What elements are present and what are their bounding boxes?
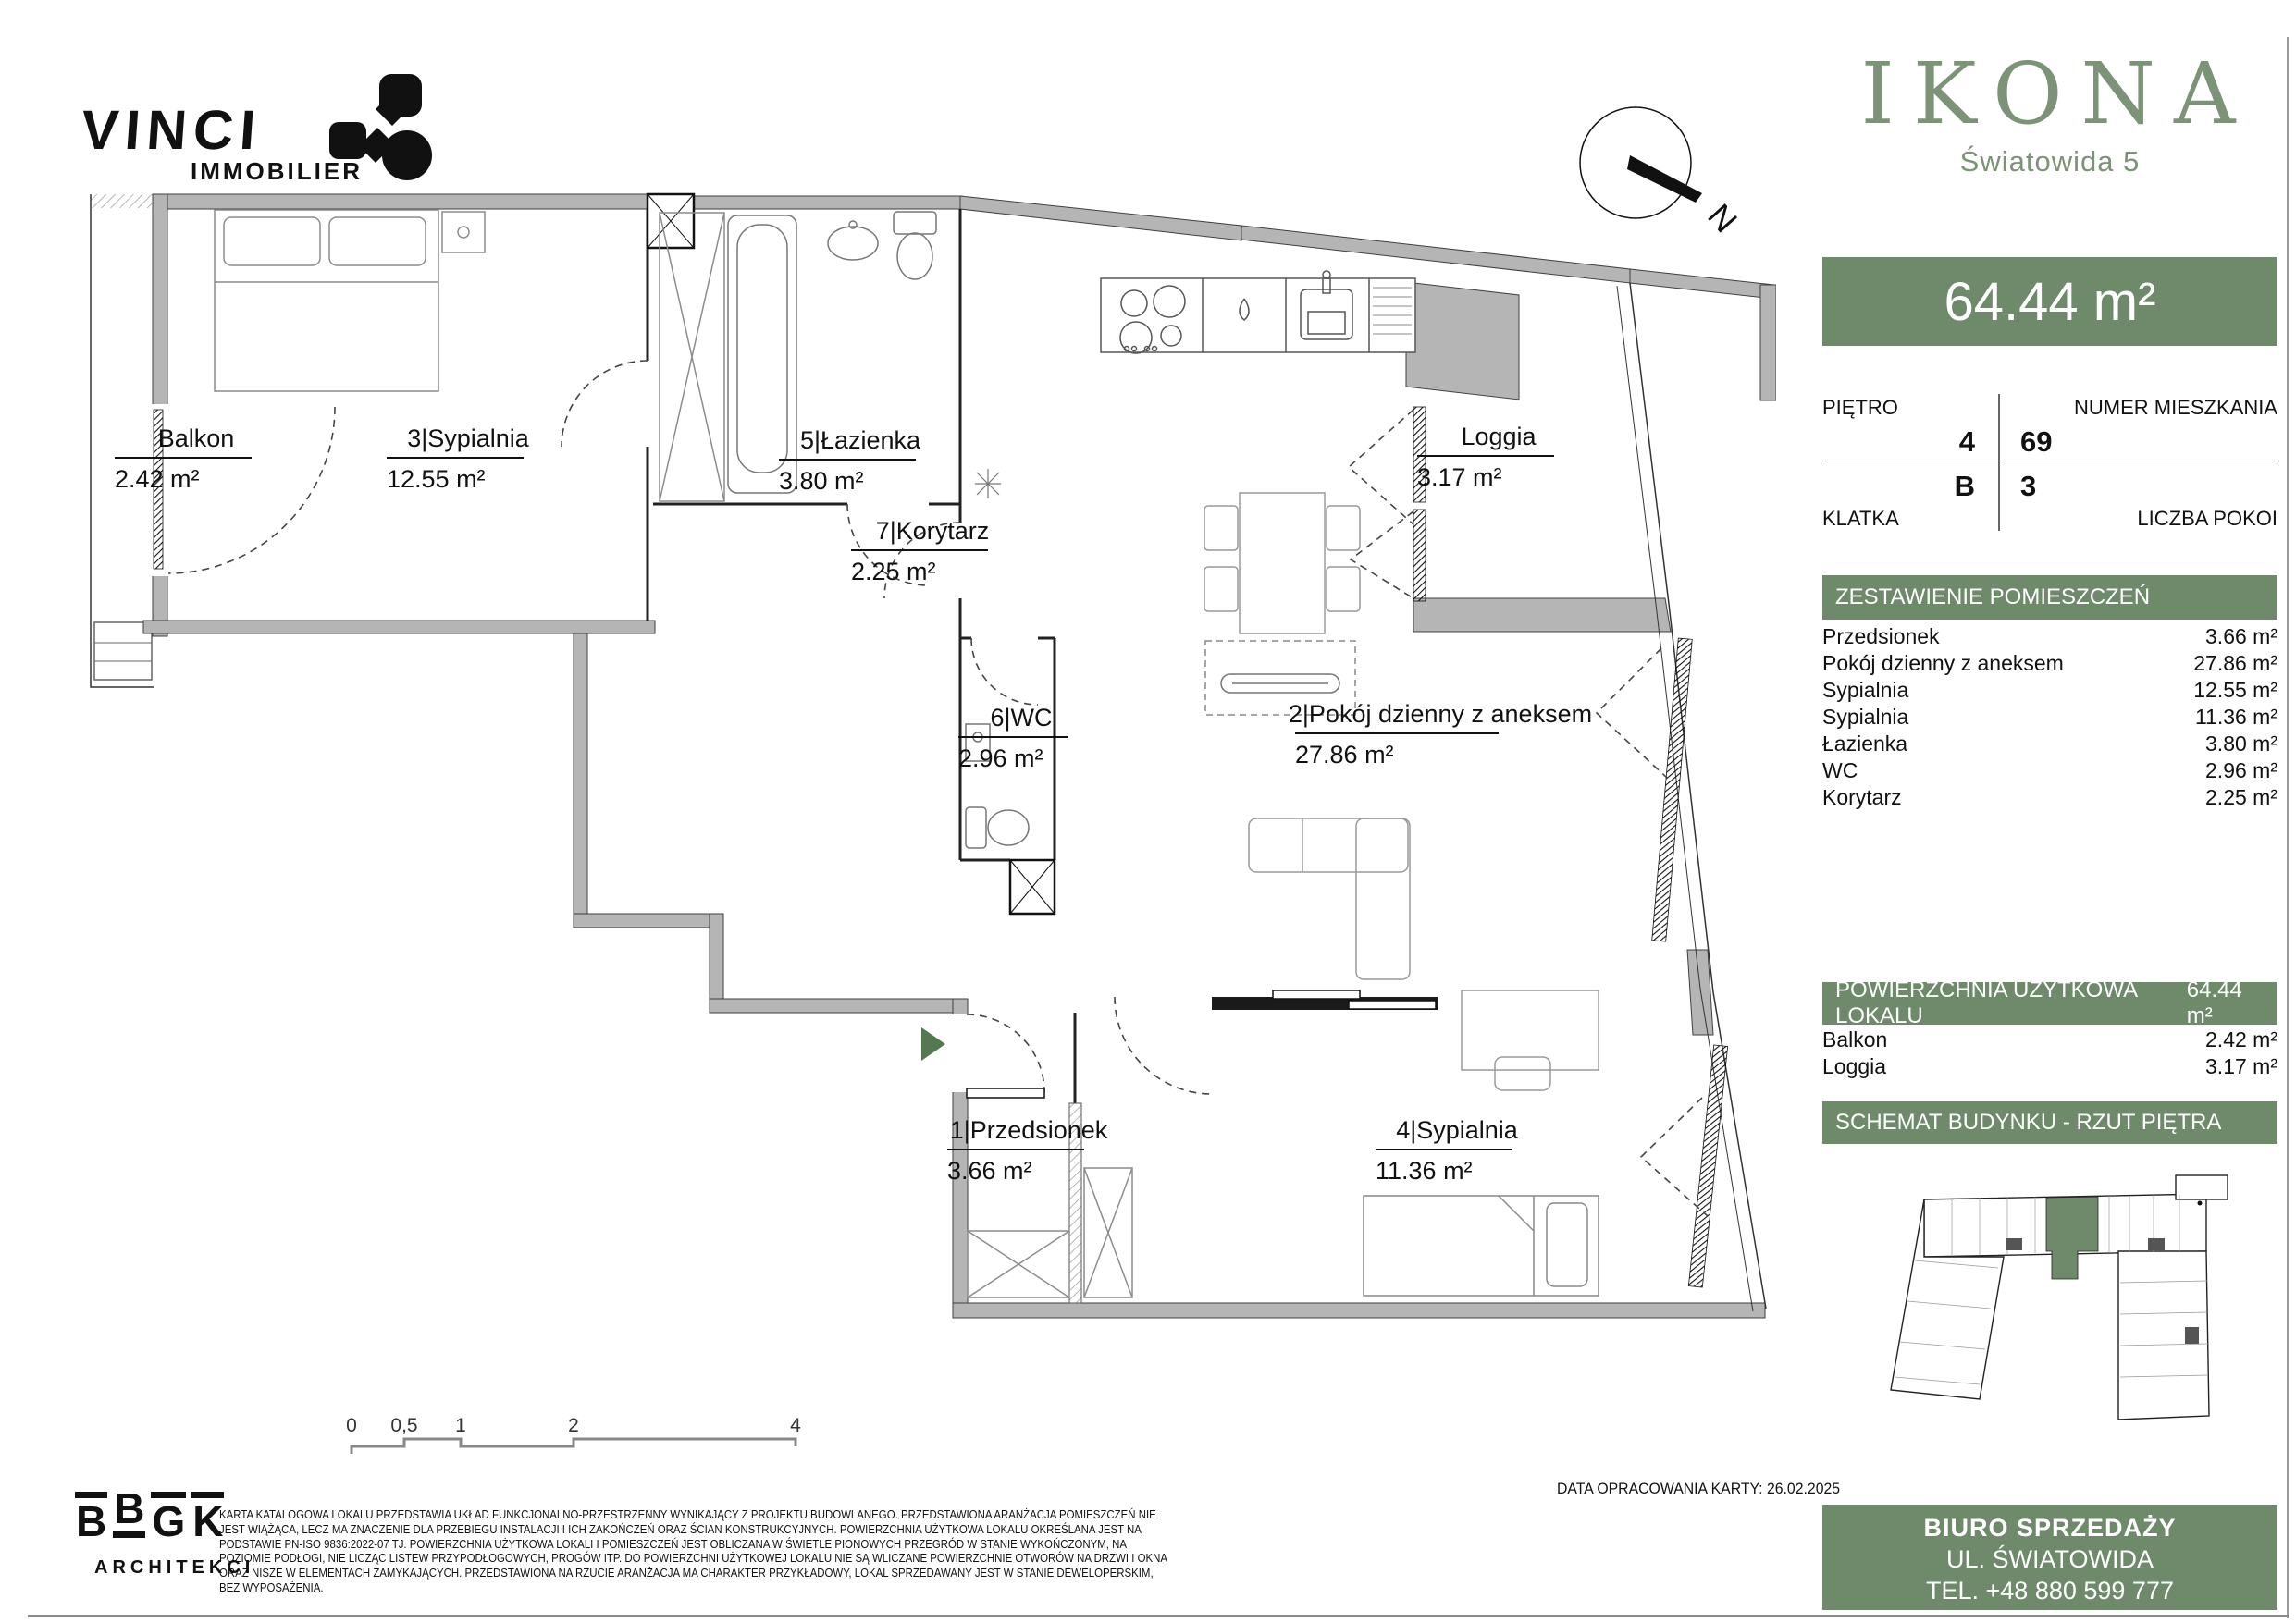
room-name: WC — [1822, 758, 1858, 783]
svg-text:0,5: 0,5 — [390, 1417, 417, 1436]
bedroom-window-icon — [1688, 1045, 1727, 1287]
svg-text:4: 4 — [790, 1417, 801, 1436]
building-schematic-header: SCHEMAT BUDYNKU - RZUT PIĘTRA — [1822, 1101, 2277, 1144]
architect-logo-subtext: ARCHITEKCI — [94, 1557, 257, 1579]
svg-text:2.25 m²: 2.25 m² — [851, 558, 936, 585]
svg-text:0: 0 — [346, 1417, 357, 1436]
shaft-diagonals — [648, 194, 1055, 914]
svg-text:1: 1 — [455, 1417, 466, 1436]
room-label-loggia: Loggia 3.17 m² — [1417, 423, 1554, 491]
loggia-door-icon — [1413, 510, 1426, 601]
svg-text:6|WC: 6|WC — [990, 704, 1052, 732]
staircase-label: KLATKA — [1822, 507, 1899, 531]
project-logo: IKONA Światowida 5 — [1822, 44, 2277, 178]
info-table-vertical-divider — [1998, 394, 2000, 531]
balcony-outline — [91, 194, 154, 687]
room-label-sypialnia4: 4|Sypialnia 11.36 m² — [1376, 1116, 1519, 1185]
room-name: Pokój dzienny z aneksem — [1822, 651, 2064, 676]
scale-bar: 0 0,5 1 2 4 — [342, 1417, 823, 1468]
building-schematic-header-text: SCHEMAT BUDYNKU - RZUT PIĘTRA — [1835, 1110, 2221, 1136]
entrance-opening — [951, 1014, 969, 1092]
double-bed-icon — [215, 210, 485, 391]
svg-text:3.80 m²: 3.80 m² — [779, 467, 864, 495]
room-label-balkon: Balkon 2.42 m² — [115, 424, 252, 493]
table-row: Przedsionek3.66 m² — [1822, 623, 2277, 650]
room-name: Przedsionek — [1822, 624, 1940, 649]
floor-plan: Balkon 2.42 m² 3|Sypialnia 12.55 m² 5|Ła… — [56, 171, 1776, 1346]
room-label-korytarz: 7|Korytarz 2.25 m² — [851, 517, 989, 585]
usable-area-table: Balkon2.42 m² Loggia3.17 m² — [1822, 1027, 2277, 1080]
architect-letter: B — [76, 1500, 106, 1543]
svg-text:Loggia: Loggia — [1461, 423, 1537, 450]
developer-logo: VINCI IMMOBILIER — [81, 72, 433, 183]
svg-text:11.36 m²: 11.36 m² — [1376, 1157, 1473, 1185]
room-area: 12.55 m² — [2193, 678, 2277, 703]
svg-text:1|Przedsionek: 1|Przedsionek — [950, 1116, 1108, 1144]
sales-office-box: BIURO SPRZEDAŻY UL. ŚWIATOWIDA TEL. +48 … — [1822, 1505, 2277, 1610]
building-schematic — [1887, 1161, 2257, 1475]
svg-text:3|Sypialnia: 3|Sypialnia — [407, 424, 530, 452]
svg-text:12.55 m²: 12.55 m² — [387, 465, 486, 493]
unit-info-table: PIĘTRO NUMER MIESZKANIA 4 69 B 3 KLATKA … — [1822, 388, 2277, 535]
room-label-sypialnia3: 3|Sypialnia 12.55 m² — [387, 424, 530, 493]
disclaimer-text: KARTA KATALOGOWA LOKALU PRZEDSTAWIA UKŁA… — [219, 1507, 1170, 1595]
table-row: Pokój dzienny z aneksem27.86 m² — [1822, 650, 2277, 677]
wardrobe-icon — [968, 1168, 1132, 1297]
svg-text:4|Sypialnia: 4|Sypialnia — [1396, 1116, 1519, 1144]
sofa-icon — [1249, 818, 1410, 979]
floor-value: 4 — [1906, 425, 1975, 459]
page-border-bottom — [28, 1615, 2289, 1617]
svg-text:2|Pokój dzienny z aneksem: 2|Pokój dzienny z aneksem — [1289, 700, 1592, 728]
staircase-value: B — [1906, 470, 1975, 503]
project-logo-title: IKONA — [1837, 44, 2277, 143]
single-bed-icon — [1364, 1196, 1599, 1296]
wardrobe-icon — [660, 213, 724, 501]
apartment-number-value: 69 — [2020, 425, 2052, 459]
highlighted-unit — [2046, 1197, 2098, 1279]
room-area: 27.86 m² — [2193, 651, 2277, 676]
room-area: 3.80 m² — [2205, 732, 2277, 756]
toilet-icon — [894, 212, 936, 279]
sales-office-address: UL. ŚWIATOWIDA — [1822, 1545, 2277, 1574]
kitchen-counter — [1101, 278, 1415, 352]
sales-office-phone: TEL. +48 880 599 777 — [1822, 1577, 2277, 1605]
room-area: 3.66 m² — [2205, 624, 2277, 649]
sink-icon — [828, 221, 878, 260]
usable-area-header-text: POWIERZCHNIA UŻYTKOWA LOKALU — [1835, 977, 2187, 1029]
svg-text:2.96 m²: 2.96 m² — [958, 744, 1043, 772]
room-schedule-header: ZESTAWIENIE POMIESZCZEŃ — [1822, 575, 2277, 620]
room-area: 2.42 m² — [2205, 1027, 2277, 1052]
room-area: 3.17 m² — [2205, 1054, 2277, 1079]
shaft-icon — [648, 194, 1055, 914]
usable-area-header: POWIERZCHNIA UŻYTKOWA LOKALU 64.44 m² — [1822, 982, 2277, 1025]
card-date: DATA OPRACOWANIA KARTY: 26.02.2025 — [1557, 1480, 1840, 1498]
page-border-right — [2287, 37, 2289, 1618]
info-table-horizontal-divider — [1822, 461, 2277, 461]
svg-text:2: 2 — [568, 1417, 579, 1436]
usable-area-header-value: 64.44 m² — [2187, 977, 2265, 1029]
sales-office-title: BIURO SPRZEDAŻY — [1822, 1514, 2277, 1543]
architect-letter: G — [152, 1500, 185, 1543]
svg-text:7|Korytarz: 7|Korytarz — [876, 517, 990, 545]
architect-logo: B B G K ARCHITEKCI — [72, 1500, 257, 1579]
table-row: Loggia3.17 m² — [1822, 1053, 2277, 1080]
floor-label: PIĘTRO — [1822, 396, 1898, 420]
room-schedule-header-text: ZESTAWIENIE POMIESZCZEŃ — [1835, 584, 2150, 610]
table-row: WC2.96 m² — [1822, 757, 2277, 784]
table-row: Balkon2.42 m² — [1822, 1027, 2277, 1053]
room-area: 2.25 m² — [2205, 785, 2277, 810]
room-count-label: LICZBA POKOI — [2137, 507, 2277, 531]
svg-text:2.42 m²: 2.42 m² — [115, 465, 200, 493]
room-count-value: 3 — [2020, 470, 2036, 503]
room-area: 2.96 m² — [2205, 758, 2277, 783]
wc-toilet-icon — [966, 807, 1029, 848]
table-row: Sypialnia12.55 m² — [1822, 677, 2277, 704]
room-label-wc: 6|WC 2.96 m² — [958, 704, 1068, 772]
svg-text:Balkon: Balkon — [158, 424, 235, 452]
svg-text:3.17 m²: 3.17 m² — [1417, 463, 1502, 491]
entrance-door-leaf — [967, 1088, 1044, 1098]
project-address: Światowida 5 — [1822, 145, 2277, 178]
bathtub-icon — [728, 215, 796, 493]
room-name: Sypialnia — [1822, 678, 1908, 703]
vinci-symbol-icon — [320, 72, 436, 183]
living-window-icon — [1652, 638, 1693, 941]
room-label-lazienka: 5|Łazienka 3.80 m² — [779, 426, 921, 495]
architect-letter: B — [114, 1487, 144, 1530]
room-name: Loggia — [1822, 1054, 1886, 1079]
svg-text:5|Łazienka: 5|Łazienka — [800, 426, 921, 454]
desk-icon — [1462, 990, 1599, 1090]
developer-logo-text: VINCI — [80, 98, 265, 162]
room-name: Sypialnia — [1822, 705, 1908, 730]
architect-letter: K — [192, 1500, 223, 1543]
table-row: Korytarz2.25 m² — [1822, 784, 2277, 811]
room-name: Łazienka — [1822, 732, 1907, 756]
dining-table-icon — [1204, 493, 1360, 633]
entrance-arrow-icon — [921, 1027, 945, 1061]
area-banner: 64.44 m² — [1822, 257, 2277, 346]
apartment-number-label: NUMER MIESZKANIA — [2074, 396, 2277, 420]
table-row: Łazienka3.80 m² — [1822, 731, 2277, 757]
table-row: Sypialnia11.36 m² — [1822, 704, 2277, 731]
svg-text:27.86 m²: 27.86 m² — [1295, 741, 1394, 768]
ceiling-point-icon — [975, 469, 1001, 498]
room-name: Korytarz — [1822, 785, 1902, 810]
room-name: Balkon — [1822, 1027, 1887, 1052]
room-label-pokoj-dzienny: 2|Pokój dzienny z aneksem 27.86 m² — [1289, 700, 1592, 768]
room-area: 11.36 m² — [2195, 705, 2277, 730]
glazed-facade-lines — [1617, 283, 1766, 1311]
svg-text:3.66 m²: 3.66 m² — [947, 1157, 1032, 1185]
room-schedule-table: Przedsionek3.66 m² Pokój dzienny z aneks… — [1822, 623, 2277, 811]
